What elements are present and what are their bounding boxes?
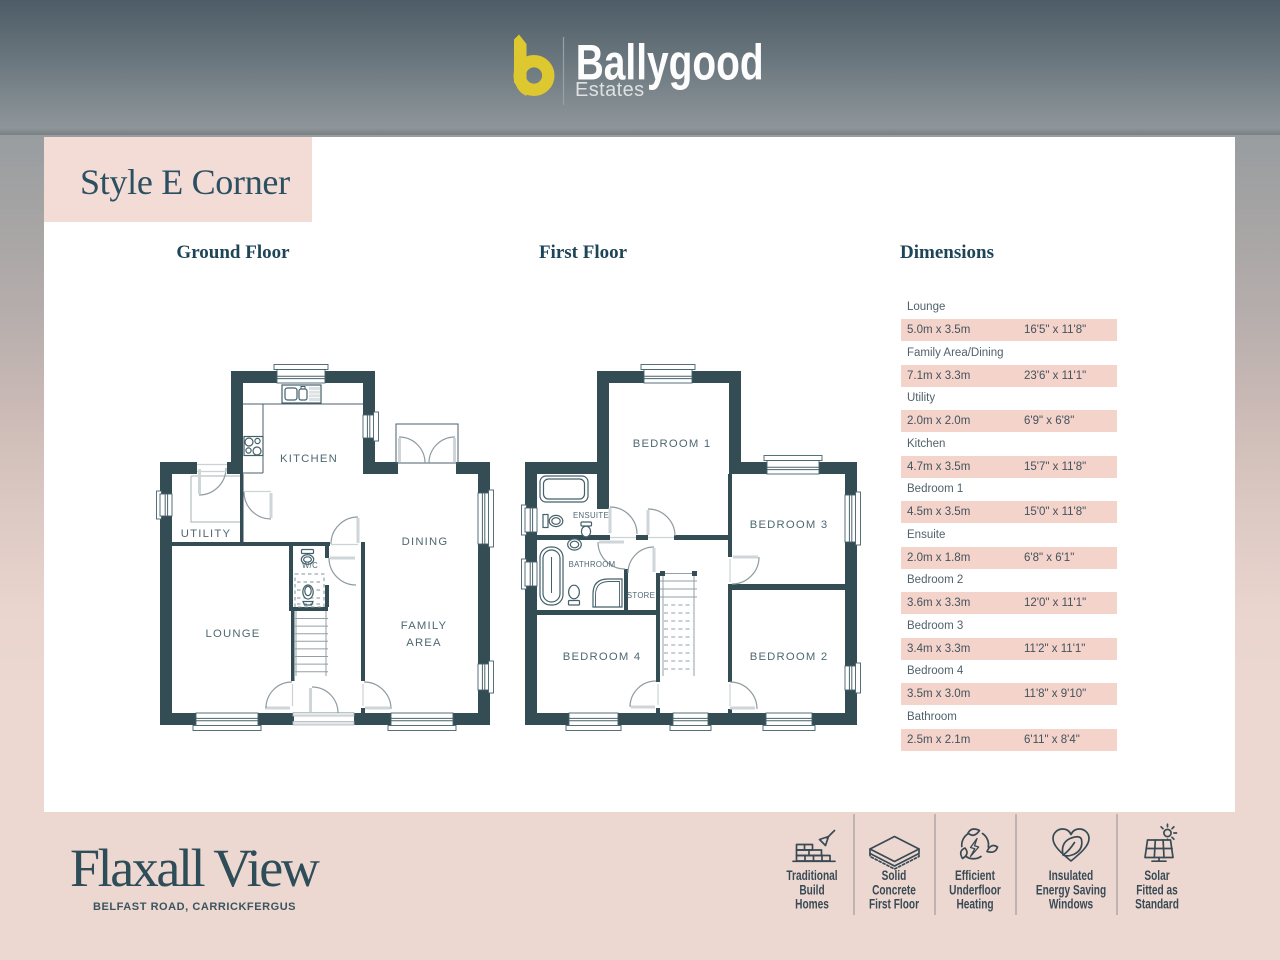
svg-text:Standard: Standard: [1135, 896, 1179, 912]
svg-text:ENSUITE: ENSUITE: [573, 511, 609, 520]
svg-text:W/C: W/C: [302, 561, 318, 570]
svg-text:Windows: Windows: [1049, 896, 1094, 912]
svg-text:BEDROOM 3: BEDROOM 3: [750, 519, 829, 531]
svg-text:BEDROOM 1: BEDROOM 1: [633, 438, 712, 450]
svg-text:First Floor: First Floor: [869, 896, 919, 912]
svg-text:FAMILY: FAMILY: [401, 620, 448, 632]
svg-text:KITCHEN: KITCHEN: [280, 453, 338, 465]
svg-text:BATHROOM: BATHROOM: [569, 560, 616, 569]
svg-text:AREA: AREA: [406, 637, 442, 649]
svg-text:DINING: DINING: [402, 536, 449, 548]
svg-text:STORE: STORE: [627, 591, 655, 600]
svg-text:Homes: Homes: [795, 896, 829, 912]
svg-text:Heating: Heating: [956, 896, 993, 912]
svg-text:BEDROOM 4: BEDROOM 4: [563, 651, 642, 663]
svg-text:LOUNGE: LOUNGE: [206, 628, 261, 640]
svg-text:BEDROOM 2: BEDROOM 2: [750, 651, 829, 663]
svg-text:UTILITY: UTILITY: [181, 528, 231, 540]
